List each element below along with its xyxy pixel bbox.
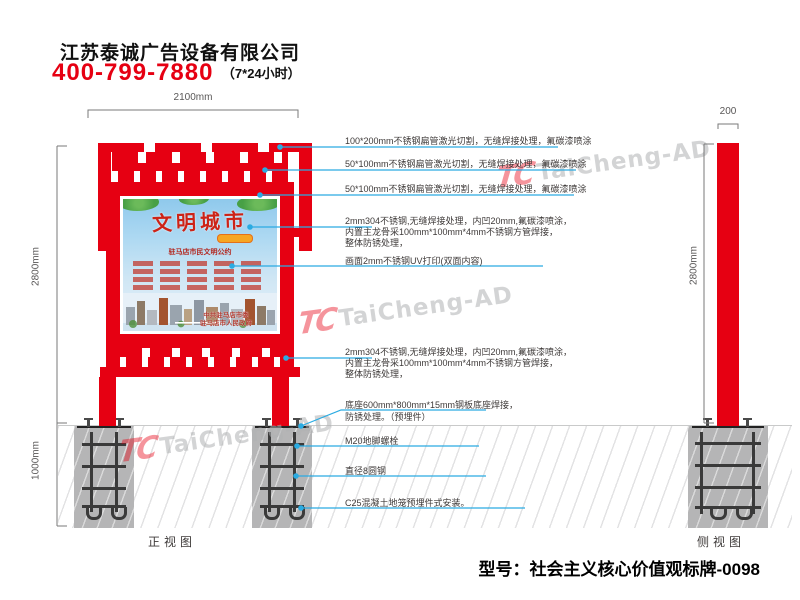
annotation: 底座600mm*800mm*15mm钢板底座焊接， 防锈处理。（预埋件）	[345, 400, 675, 423]
annotation: 2mm304不锈钢,无缝焊接处理，内凹20mm,氟碳漆喷涂， 内置主龙骨采100…	[345, 216, 675, 249]
annotation: 2mm304不锈钢,无缝焊接处理，内凹20mm,氟碳漆喷涂， 内置主龙骨采100…	[345, 347, 675, 380]
dim-bracket-side-width	[718, 124, 738, 129]
annotation: C25混凝土地笼预埋件式安装。	[345, 498, 675, 509]
leader-dots	[229, 144, 304, 511]
annotation-line: 2mm304不锈钢,无缝焊接处理，内凹20mm,氟碳漆喷涂，	[345, 347, 675, 358]
annotation: 50*100mm不锈钢扁管激光切割，无缝焊接处理，氟碳漆喷涂	[345, 159, 675, 170]
dim-bracket-front-width	[88, 110, 298, 118]
annotation-line: 内置主龙骨采100mm*100mm*4mm不锈钢方管焊接，	[345, 358, 675, 369]
dim-label-side-width: 200	[703, 106, 753, 117]
dim-line-side-height	[704, 144, 714, 423]
spec-sheet-canvas: 江苏泰诚广告设备有限公司 400-799-7880 （7*24小时）	[0, 0, 800, 600]
annotation: M20地脚螺栓	[345, 436, 675, 447]
dim-label-front-height: 2800mm	[31, 232, 42, 302]
annotation-line: 内置主龙骨采100mm*100mm*4mm不锈钢方管焊接，	[345, 227, 675, 238]
annotation-line: 整体防锈处理，	[345, 238, 675, 249]
leader-lines	[232, 147, 576, 508]
annotation: 100*200mm不锈钢扁管激光切割，无缝焊接处理，氟碳漆喷涂	[345, 136, 675, 147]
annotation-line: M20地脚螺栓	[345, 436, 675, 447]
dim-label-front-width: 2100mm	[143, 92, 243, 103]
model-number: 型号：社会主义核心价值观标牌-0098	[470, 555, 760, 580]
annotation-line: 50*100mm不锈钢扁管激光切割，无缝焊接处理，氟碳漆喷涂	[345, 159, 675, 170]
dim-label-side-height: 2800mm	[689, 231, 700, 301]
dim-line-front-height	[57, 146, 67, 526]
annotation-line: 底座600mm*800mm*15mm钢板底座焊接，	[345, 400, 675, 412]
annotation-line: 画面2mm不锈钢UV打印(双面内容)	[345, 256, 675, 267]
side-view-label: 侧视图	[697, 533, 745, 550]
annotation: 直径8圆钢	[345, 466, 675, 477]
annotation-line: 2mm304不锈钢,无缝焊接处理，内凹20mm,氟碳漆喷涂，	[345, 216, 675, 227]
annotation: 50*100mm不锈钢扁管激光切割，无缝焊接处理，氟碳漆喷涂	[345, 184, 675, 195]
front-view-label: 正视图	[148, 533, 196, 550]
annotation-line: 100*200mm不锈钢扁管激光切割，无缝焊接处理，氟碳漆喷涂	[345, 136, 675, 147]
annotation-line: 整体防锈处理，	[345, 369, 675, 380]
lines-overlay	[0, 0, 800, 600]
dim-label-foundation-depth: 1000mm	[31, 426, 42, 496]
annotation: 画面2mm不锈钢UV打印(双面内容)	[345, 256, 675, 267]
annotation-line: 防锈处理。（预埋件）	[345, 412, 675, 424]
annotation-line: C25混凝土地笼预埋件式安装。	[345, 498, 675, 509]
annotation-line: 直径8圆钢	[345, 466, 675, 477]
annotation-line: 50*100mm不锈钢扁管激光切割，无缝焊接处理，氟碳漆喷涂	[345, 184, 675, 195]
